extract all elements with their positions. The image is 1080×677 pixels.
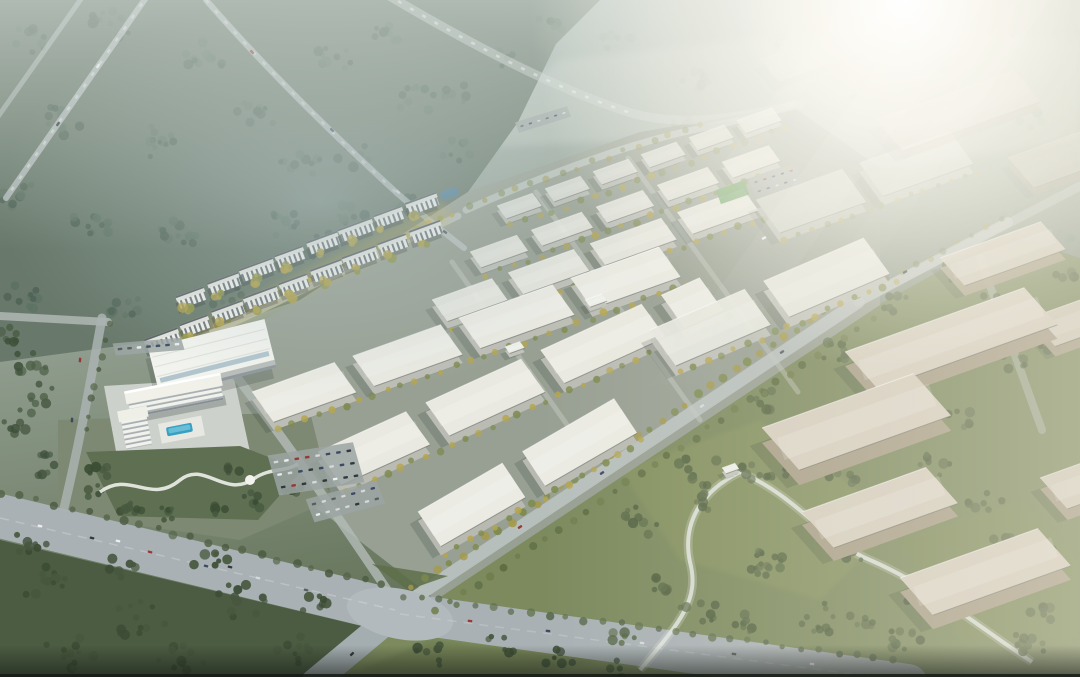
aerial-rendering-image: Aerial bird's-eye architectural renderin…: [0, 0, 1080, 677]
atmosphere: [0, 0, 1080, 677]
scene-svg: [0, 0, 1080, 677]
vignette: [0, 645, 1080, 677]
